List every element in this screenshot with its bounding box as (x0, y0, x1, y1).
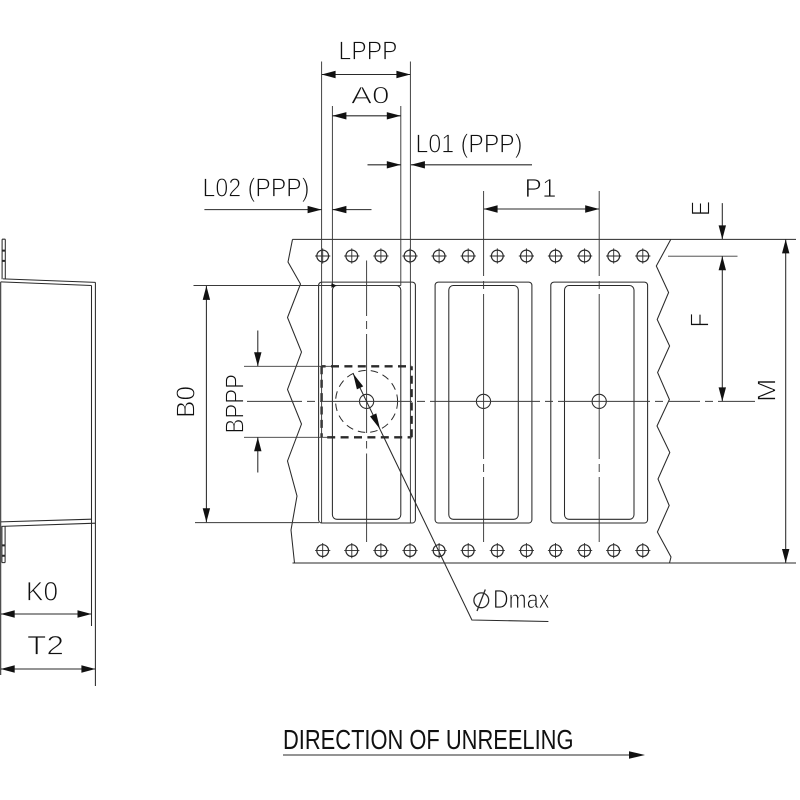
svg-text:BPPP: BPPP (220, 374, 250, 434)
svg-text:L02 (PPP): L02 (PPP) (203, 173, 310, 203)
svg-text:L01 (PPP): L01 (PPP) (416, 128, 523, 158)
svg-text:F: F (685, 313, 715, 328)
svg-text:P1: P1 (525, 173, 557, 203)
svg-text:K0: K0 (26, 577, 58, 607)
svg-text:LPPP: LPPP (339, 36, 398, 66)
svg-text:T2: T2 (27, 631, 64, 661)
svg-text:A0: A0 (351, 82, 390, 109)
svg-text:M: M (752, 379, 782, 403)
svg-text:DIRECTION OF UNREELING: DIRECTION OF UNREELING (283, 724, 574, 755)
svg-text:Dmax: Dmax (493, 584, 550, 614)
svg-text:B0: B0 (171, 386, 201, 418)
svg-text:E: E (686, 201, 716, 216)
